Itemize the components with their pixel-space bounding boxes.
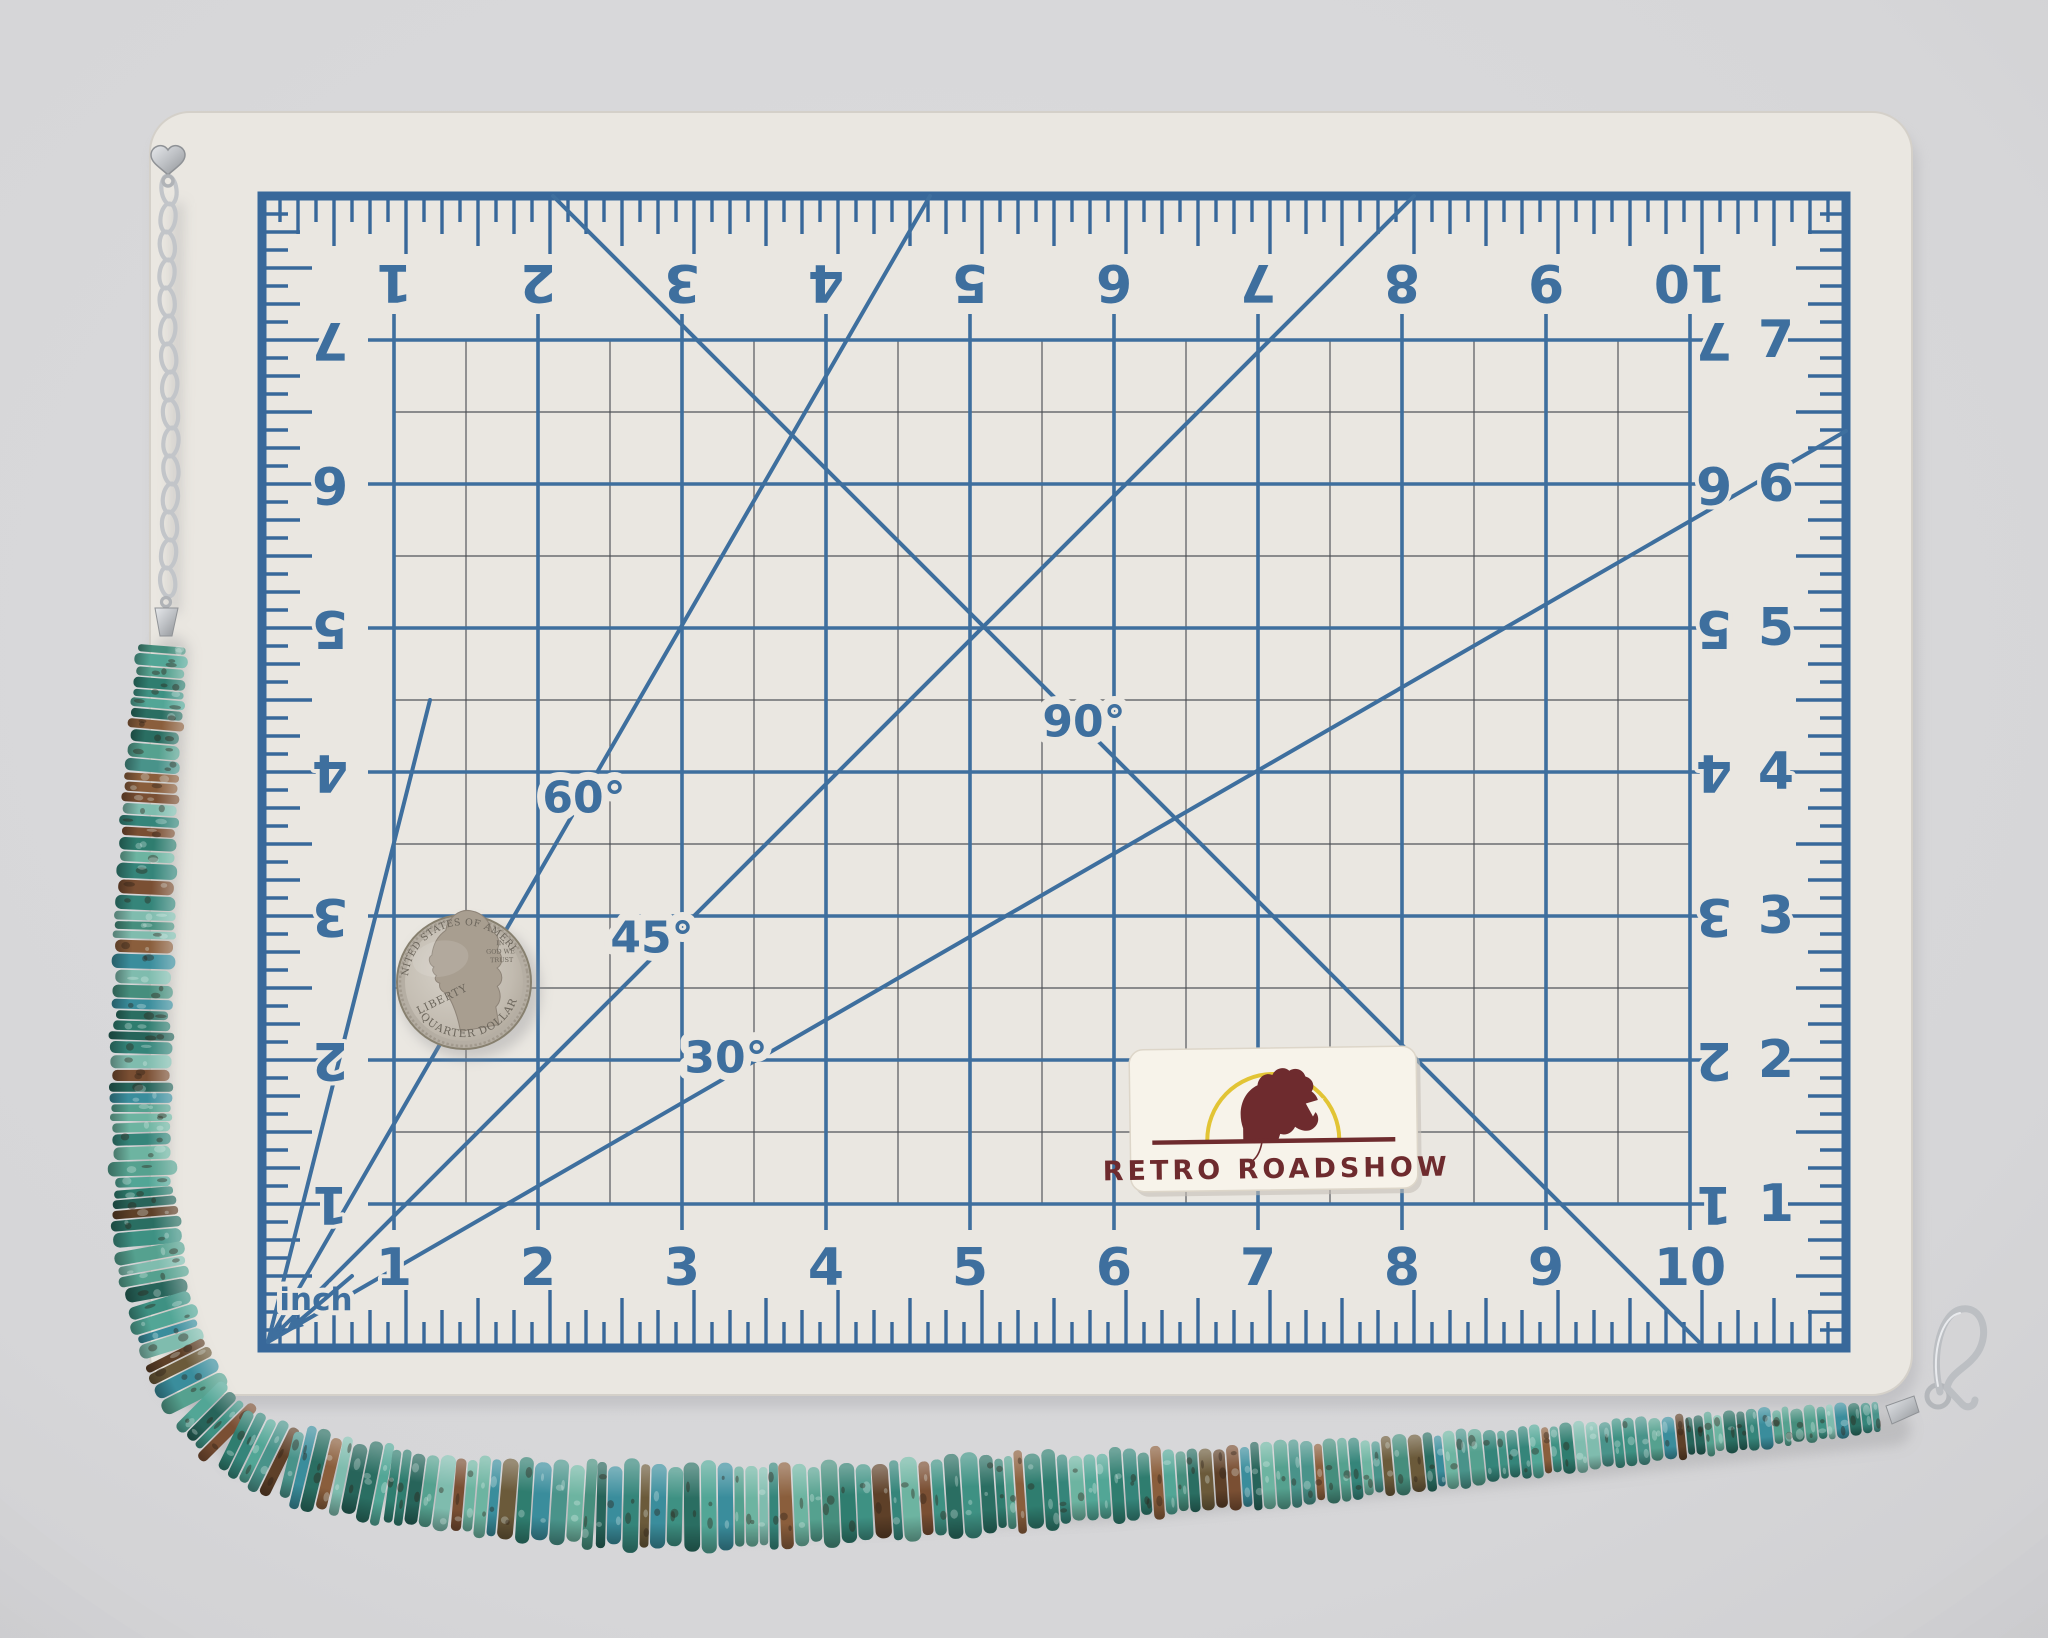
bottom-ruler-number: 10: [1654, 1238, 1726, 1298]
bottom-ruler-number: 8: [1384, 1238, 1420, 1298]
right-ruler-number-outer: 6: [1758, 454, 1794, 514]
cutting-mat: 1234567891012345678910765432176543217654…: [150, 112, 1912, 1395]
bottom-ruler-number: 4: [808, 1238, 844, 1298]
left-ruler-number: 1: [312, 1174, 348, 1234]
turquoise-bead: [684, 1462, 701, 1551]
angle-label-30: 30°: [684, 1033, 767, 1084]
turquoise-bead: [119, 837, 177, 852]
top-ruler-number: 10: [1654, 252, 1726, 312]
bottom-ruler-number: 5: [952, 1238, 988, 1298]
right-ruler-number-outer: 4: [1758, 742, 1794, 802]
turquoise-bead: [745, 1466, 758, 1547]
turquoise-bead: [606, 1466, 622, 1544]
top-ruler-number: 3: [664, 252, 700, 312]
turquoise-bead: [718, 1463, 734, 1551]
top-ruler-number: 2: [520, 252, 556, 312]
photo-stage: 1234567891012345678910765432176543217654…: [0, 0, 2048, 1638]
turquoise-bead: [115, 895, 176, 912]
left-ruler-number: 4: [312, 742, 348, 802]
turquoise-bead: [109, 1083, 173, 1093]
top-ruler-number: 6: [1096, 252, 1132, 312]
top-ruler-number: 8: [1384, 252, 1420, 312]
left-ruler-number: 6: [312, 454, 348, 514]
turquoise-bead: [112, 953, 176, 969]
turquoise-bead: [116, 862, 177, 880]
left-ruler-number: 5: [312, 598, 348, 658]
right-ruler-number-inner: 1: [1696, 1174, 1732, 1234]
bottom-ruler-number: 1: [376, 1238, 412, 1298]
turquoise-bead: [115, 921, 175, 930]
turquoise-bead: [110, 1041, 173, 1055]
product-photo: 1234567891012345678910765432176543217654…: [0, 0, 2048, 1638]
turquoise-bead: [622, 1458, 640, 1553]
top-ruler-number: 7: [1240, 252, 1276, 312]
angle-label-45: 45°: [610, 913, 693, 964]
turquoise-bead: [115, 970, 171, 985]
bottom-ruler-number: 9: [1528, 1238, 1564, 1298]
right-ruler-number-inner: 7: [1696, 310, 1732, 370]
turquoise-bead: [701, 1460, 717, 1553]
turquoise-bead: [110, 1055, 171, 1068]
turquoise-bead: [110, 1092, 173, 1103]
right-ruler-number-outer: 5: [1758, 598, 1794, 658]
top-ruler-number: 5: [952, 252, 988, 312]
turquoise-bead: [112, 984, 173, 998]
top-ruler-number: 4: [808, 252, 844, 312]
turquoise-bead: [650, 1464, 667, 1549]
turquoise-bead: [113, 1020, 170, 1031]
bottom-ruler-number: 6: [1096, 1238, 1132, 1298]
right-ruler-number-inner: 2: [1696, 1030, 1732, 1090]
turquoise-bead: [116, 1010, 168, 1020]
bottom-ruler-number: 2: [520, 1238, 556, 1298]
turquoise-bead: [110, 1113, 172, 1121]
bottom-ruler-number: 3: [664, 1238, 700, 1298]
sticker-brand-text: RETRO ROADSHOW: [1103, 1152, 1451, 1188]
turquoise-bead: [112, 1069, 169, 1081]
top-ruler-number: 9: [1528, 252, 1564, 312]
turquoise-bead: [118, 879, 174, 895]
turquoise-bead: [667, 1467, 684, 1546]
top-ruler-number: 1: [376, 252, 412, 312]
turquoise-bead: [113, 1145, 170, 1160]
right-ruler-number-inner: 6: [1696, 454, 1732, 514]
turquoise-bead: [108, 1160, 178, 1177]
angle-label-60: 60°: [542, 773, 625, 824]
right-ruler-number-inner: 4: [1696, 742, 1732, 802]
right-ruler-number-inner: 3: [1696, 886, 1732, 946]
right-ruler-number-outer: 1: [1758, 1174, 1794, 1234]
left-ruler-number: 3: [312, 886, 348, 946]
turquoise-bead: [734, 1466, 744, 1546]
left-ruler-number: 7: [312, 310, 348, 370]
left-ruler-number: 2: [312, 1030, 348, 1090]
bottom-ruler-number: 7: [1240, 1238, 1276, 1298]
turquoise-bead: [112, 999, 173, 1010]
right-ruler-number-outer: 7: [1758, 310, 1794, 370]
right-ruler-number-inner: 5: [1696, 598, 1732, 658]
turquoise-bead: [111, 1104, 170, 1112]
angle-label-90: 90°: [1042, 697, 1125, 748]
turquoise-bead: [115, 939, 173, 953]
retro-roadshow-sticker: RETRO ROADSHOW: [1101, 1046, 1451, 1198]
right-ruler-number-outer: 2: [1758, 1030, 1794, 1090]
right-ruler-number-outer: 3: [1758, 886, 1794, 946]
